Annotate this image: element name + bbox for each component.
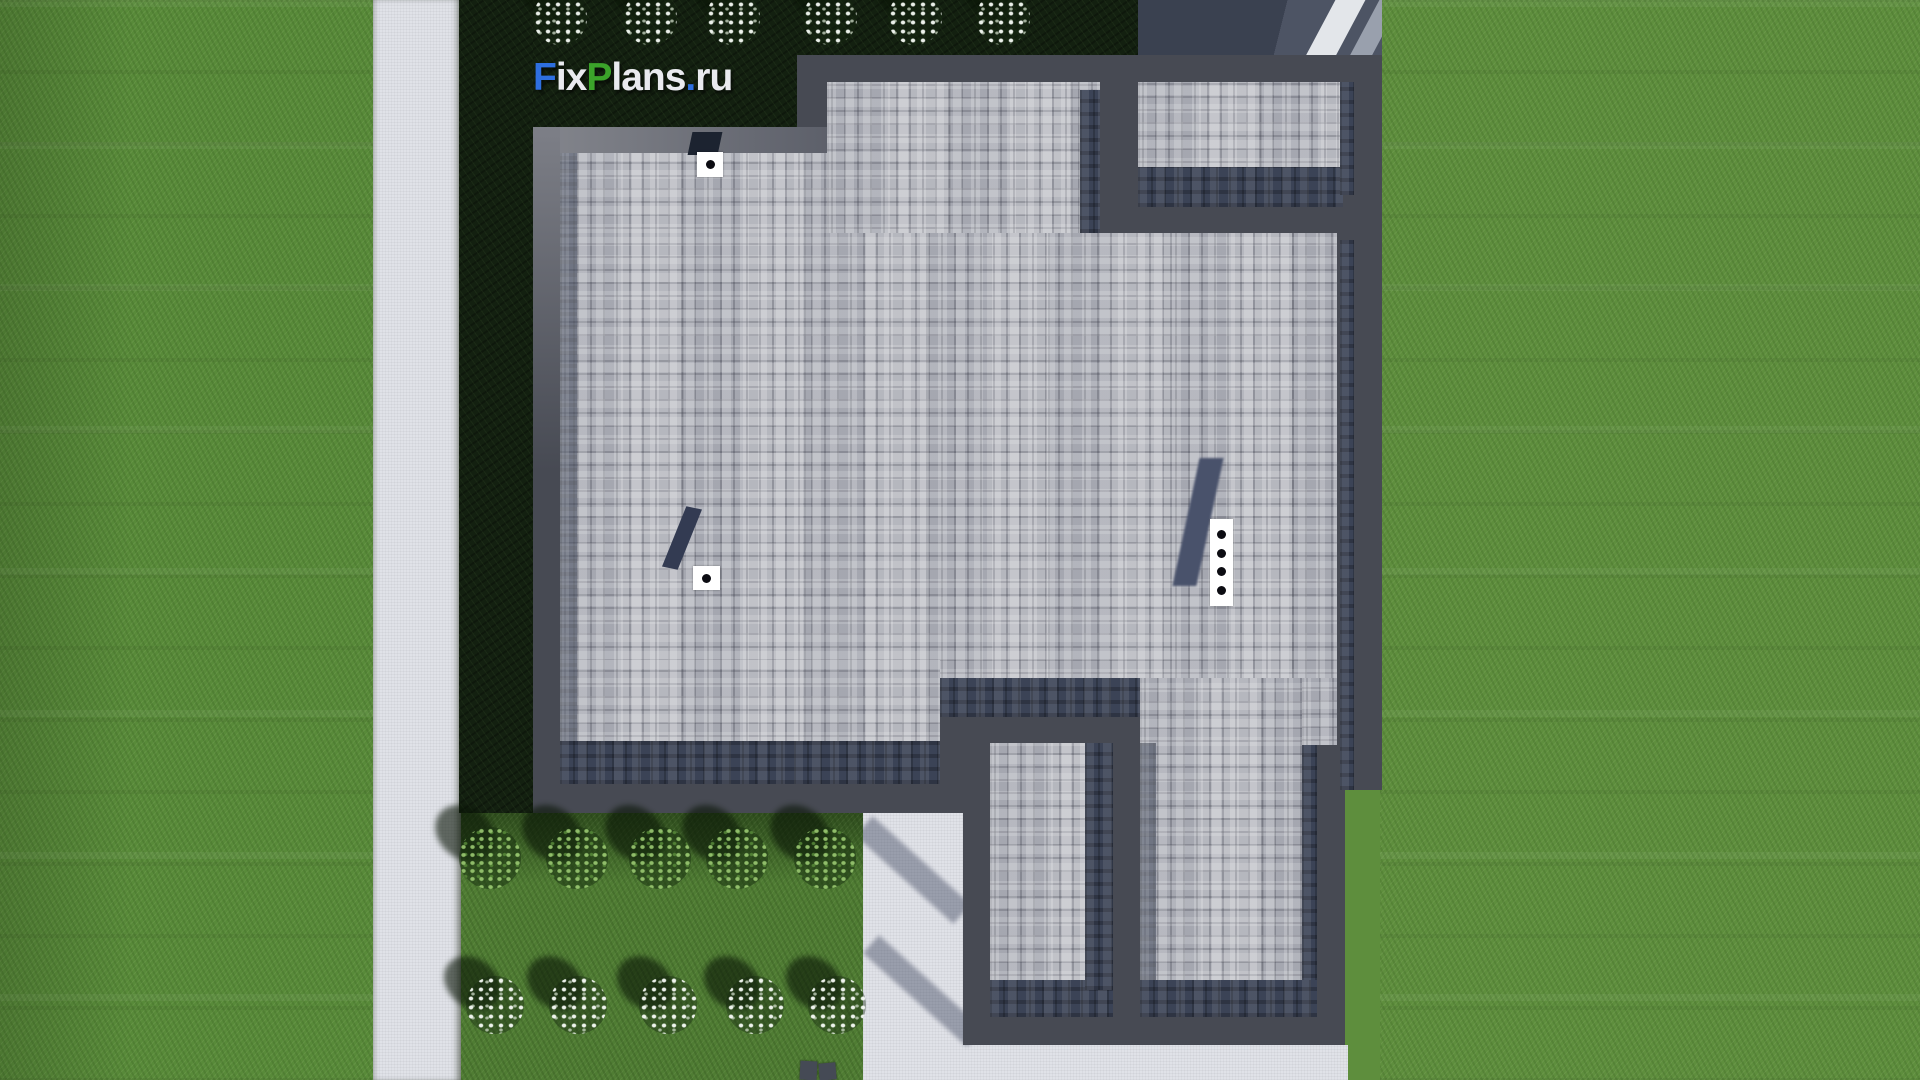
chimney (1210, 519, 1233, 606)
chimney-flue (1217, 530, 1226, 539)
chimney-flue (1217, 586, 1226, 595)
roof-field (560, 660, 940, 741)
hedge-strip (459, 0, 533, 813)
vent-flue (706, 160, 715, 169)
roof-slope-shadow (940, 678, 1140, 717)
roof-slope-shadow (1080, 90, 1100, 233)
roof-slope-shadow (1340, 82, 1354, 195)
watermark-part: F (533, 56, 556, 99)
bin (800, 1061, 818, 1080)
roof-shadow-on-walk (855, 816, 970, 924)
watermark-logo: FixPlans.ru (533, 58, 732, 97)
roof-slope-shadow (1302, 745, 1317, 1017)
roof-slope-shadow (1140, 980, 1317, 1017)
parapet-top-left (533, 127, 827, 153)
roof-field (1302, 678, 1337, 745)
roof-vent (693, 566, 720, 590)
aerial-site-plan: FixPlans.ru (0, 0, 1920, 1080)
grass-right-field (1380, 0, 1920, 1080)
roof-vent (697, 152, 723, 177)
watermark-part: ix (556, 56, 587, 99)
bin (818, 1062, 836, 1080)
chimney-flue (1217, 567, 1226, 576)
chimney-flue (1217, 549, 1226, 558)
roof-field-main (560, 233, 1337, 678)
planting-bed-top-right (827, 0, 1138, 55)
roof-field (827, 82, 1100, 233)
roof-slope-shadow (1140, 743, 1156, 980)
parapet-left (533, 127, 560, 470)
roof-slope-shadow (560, 153, 577, 784)
roof-slope-shadow (560, 741, 940, 784)
watermark-part: P (586, 56, 611, 99)
watermark-part: lans (611, 56, 685, 99)
watermark-part: . (685, 56, 695, 99)
roof-slope-shadow (1085, 743, 1113, 990)
watermark-part: ru (695, 56, 732, 99)
roof-slope-shadow (1340, 240, 1354, 790)
roof-slope-shadow (1138, 167, 1343, 207)
grass-left-field (0, 0, 373, 1080)
left-sidewalk (373, 0, 461, 1080)
driveway (1138, 0, 1382, 55)
garden-bed (461, 813, 863, 1080)
vent-flue (702, 574, 711, 583)
roof-field-right-wing (1140, 678, 1302, 980)
roof-field-top-right (1138, 82, 1343, 167)
roof-field (560, 153, 827, 233)
roof-field-left-wing (990, 743, 1085, 980)
side-yard-walk (863, 813, 963, 1080)
